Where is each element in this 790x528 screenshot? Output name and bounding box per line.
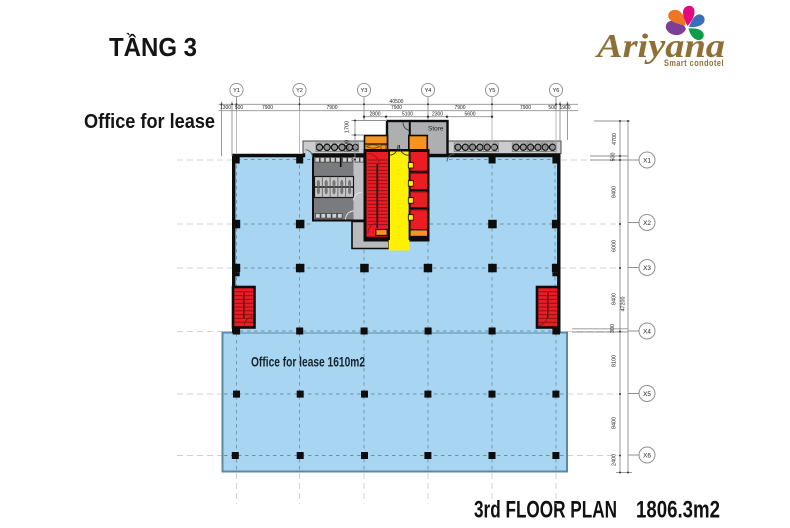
- svg-text:TẦNG 3: TẦNG 3: [109, 33, 197, 62]
- svg-text:X3: X3: [643, 265, 651, 272]
- svg-text:3000: 3000: [345, 140, 351, 152]
- svg-text:X6: X6: [643, 453, 651, 460]
- svg-text:X4: X4: [643, 329, 651, 336]
- svg-text:Y5: Y5: [489, 88, 496, 94]
- svg-text:Y6: Y6: [553, 88, 560, 94]
- svg-text:Smart condotel: Smart condotel: [664, 58, 724, 68]
- svg-text:Y3: Y3: [361, 88, 368, 94]
- svg-text:500: 500: [548, 105, 557, 111]
- svg-text:5100: 5100: [402, 111, 413, 117]
- svg-text:Y1: Y1: [233, 88, 240, 94]
- svg-text:2300: 2300: [432, 111, 443, 117]
- svg-text:500: 500: [235, 105, 244, 111]
- svg-text:Store: Store: [428, 126, 444, 133]
- svg-text:8400: 8400: [612, 293, 618, 305]
- svg-text:8100: 8100: [612, 355, 618, 367]
- svg-text:5600: 5600: [464, 111, 475, 117]
- svg-text:7900: 7900: [454, 105, 465, 111]
- svg-text:6000: 6000: [612, 240, 618, 252]
- svg-text:2800: 2800: [369, 111, 380, 117]
- svg-text:8400: 8400: [612, 186, 618, 198]
- svg-text:7900: 7900: [391, 105, 402, 111]
- svg-text:Y2: Y2: [296, 88, 303, 94]
- svg-text:8400: 8400: [612, 417, 618, 429]
- svg-text:1900: 1900: [559, 105, 570, 111]
- svg-text:47200: 47200: [621, 297, 627, 312]
- svg-text:Y4: Y4: [425, 88, 432, 94]
- svg-text:7900: 7900: [520, 105, 531, 111]
- svg-text:500: 500: [611, 153, 617, 162]
- svg-text:X2: X2: [643, 220, 651, 227]
- svg-text:300: 300: [610, 324, 616, 333]
- svg-text:Office for lease 1610m2: Office for lease 1610m2: [251, 354, 365, 369]
- svg-text:1700: 1700: [345, 121, 351, 133]
- svg-text:X1: X1: [643, 158, 651, 165]
- svg-text:X5: X5: [643, 391, 651, 398]
- svg-text:2400: 2400: [612, 454, 618, 466]
- svg-text:1300: 1300: [220, 105, 231, 111]
- svg-text:7900: 7900: [326, 105, 337, 111]
- svg-text:4700: 4700: [612, 133, 618, 145]
- svg-text:3rd FLOOR PLAN: 3rd FLOOR PLAN: [474, 497, 617, 524]
- svg-text:1806.3m2: 1806.3m2: [636, 497, 720, 524]
- svg-text:Office for lease: Office for lease: [84, 110, 215, 133]
- svg-text:7900: 7900: [262, 105, 273, 111]
